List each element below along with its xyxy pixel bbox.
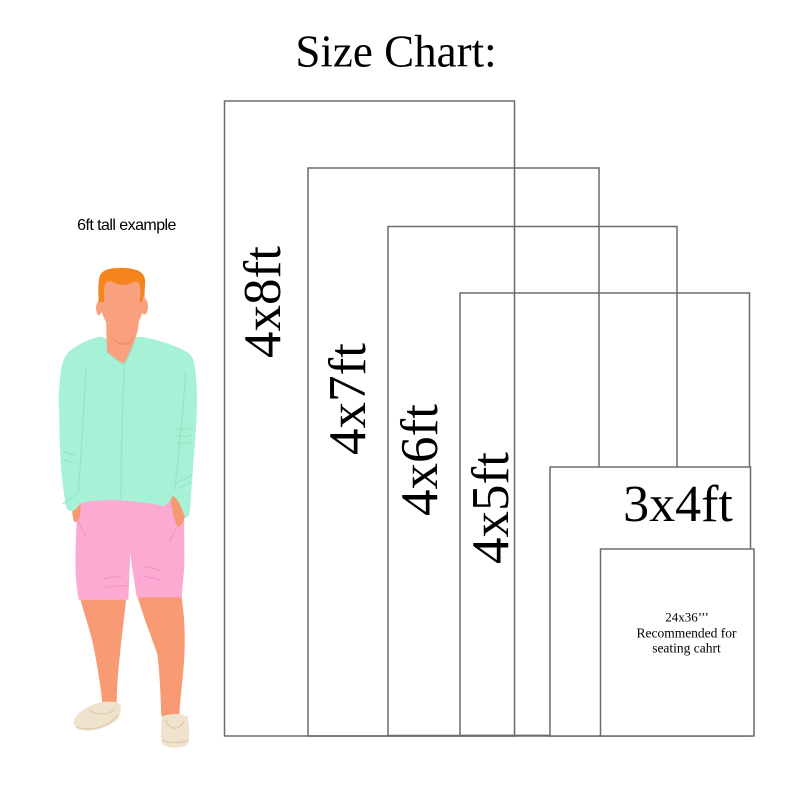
- svg-text:seating cahrt: seating cahrt: [652, 641, 721, 656]
- svg-text:4x6ft: 4x6ft: [391, 404, 449, 516]
- svg-text:24x36’’’: 24x36’’’: [665, 610, 709, 625]
- svg-text:4x7ft: 4x7ft: [319, 343, 377, 455]
- svg-text:Recommended for: Recommended for: [636, 626, 737, 641]
- svg-text:4x5ft: 4x5ft: [462, 452, 520, 564]
- svg-text:6ft tall example: 6ft tall example: [77, 217, 176, 234]
- svg-text:4x8ft: 4x8ft: [234, 246, 292, 358]
- svg-text:Size Chart:: Size Chart:: [295, 27, 496, 77]
- svg-text:3x4ft: 3x4ft: [623, 476, 733, 533]
